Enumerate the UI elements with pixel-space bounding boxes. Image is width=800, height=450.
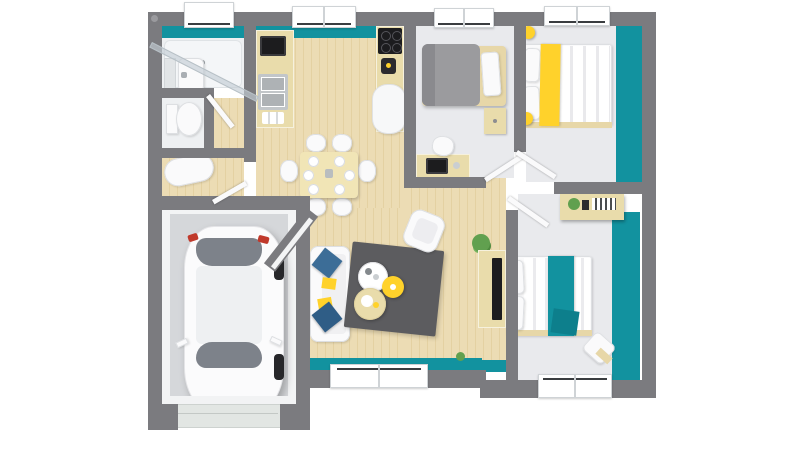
bed3-desk-books [592, 198, 616, 210]
sofa-cushion-yellow [321, 277, 336, 290]
wall-garage-bottom-right [280, 404, 310, 430]
wall-outer-right [642, 12, 656, 398]
window-living [330, 364, 428, 388]
window-bedroom1 [434, 8, 494, 28]
sink-basin-1 [261, 77, 285, 91]
dining-chair [306, 134, 326, 152]
nightstand-knob [493, 119, 497, 123]
car-rear-window [196, 238, 262, 266]
dining-chair [280, 160, 298, 182]
window-bathroom [184, 2, 234, 28]
bed1-duvet-fold [422, 44, 435, 106]
teal-wall-bedroom3 [612, 212, 640, 380]
wall-bed2-bottom [554, 182, 642, 194]
wall-kitchen-bed1 [404, 12, 416, 188]
place-setting [334, 156, 345, 167]
bed2-duvet-folds [560, 46, 610, 124]
place-setting [303, 170, 314, 181]
table-centerpiece [325, 169, 333, 178]
desk-mug [453, 162, 460, 169]
sink-basin-2 [261, 93, 285, 107]
wall-bed3-left [506, 210, 518, 382]
garage-door-slat [178, 413, 278, 414]
wall-bed1-bottom [404, 177, 486, 188]
dining-chair [358, 160, 376, 182]
teal-wall-bedroom2 [616, 26, 642, 182]
place-setting [334, 184, 345, 195]
wall-garage-top [148, 196, 310, 210]
wall-bed1-bed2 [514, 12, 526, 152]
plant-small [456, 352, 465, 361]
laptop [426, 158, 448, 174]
window-bedroom2 [544, 6, 610, 26]
window-kitchen [292, 6, 356, 28]
bed3-desk-item [582, 200, 589, 210]
coffee-maker-dot [386, 63, 391, 68]
toilet-bowl [176, 102, 202, 136]
coffee-table-item [365, 268, 372, 275]
wall-tubroom-top [148, 148, 248, 158]
car-wheel [274, 354, 284, 380]
coffee-table-item [373, 274, 379, 280]
burner-1 [381, 31, 391, 41]
coffee-table-plate [361, 295, 373, 307]
wall-garage-bottom-left [148, 404, 178, 430]
microwave [260, 36, 286, 56]
dishes [262, 112, 284, 124]
place-setting [344, 170, 355, 181]
burner-3 [381, 43, 391, 53]
bed3-teal-throw [550, 308, 579, 335]
garage-door [176, 404, 282, 428]
exterior-fixture [151, 15, 158, 22]
place-setting [308, 156, 319, 167]
sink-faucet-icon [181, 72, 187, 78]
floorplan-scene [0, 0, 800, 450]
window-bedroom3 [538, 374, 612, 398]
place-setting [308, 184, 319, 195]
bed2-yellow-runner [539, 44, 560, 126]
tv [492, 258, 502, 320]
burner-4 [392, 43, 402, 53]
fridge [372, 84, 406, 134]
bed1-pillow [480, 51, 501, 96]
bed2-frame-edge [522, 122, 612, 128]
wall-outer-left [148, 12, 162, 430]
coffee-table-dot [373, 302, 379, 308]
dining-chair [332, 198, 352, 216]
burner-2 [392, 31, 402, 41]
car-roof [196, 266, 262, 344]
car-windshield [196, 342, 262, 368]
bed3-desk-plant [568, 198, 580, 210]
coffee-table-yellow-dot [390, 284, 396, 290]
